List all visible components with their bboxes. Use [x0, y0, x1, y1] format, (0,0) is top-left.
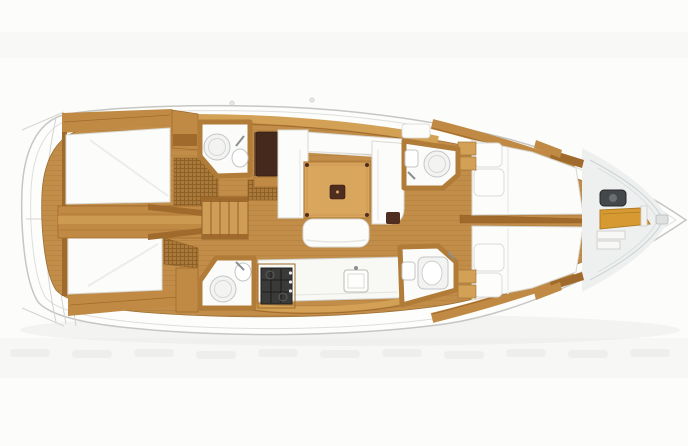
pillow [474, 273, 502, 297]
settee-right-arm [372, 141, 404, 224]
smudge [382, 349, 422, 357]
smudge [196, 351, 236, 359]
shower-basin [210, 276, 236, 302]
chain-guide [641, 206, 647, 226]
shelf-unit [458, 142, 476, 155]
smudge [320, 350, 360, 358]
shadow-smudge-row [10, 349, 670, 359]
stove-cooktop [261, 268, 292, 304]
sink-faucet [354, 266, 358, 270]
smudge [10, 349, 50, 357]
pillow [474, 244, 504, 271]
shelf-unit [458, 270, 476, 283]
chart-table [256, 132, 278, 176]
sink [402, 262, 415, 280]
table-corner-post [365, 163, 369, 167]
steps-rail-top [202, 197, 248, 202]
shelf-unit [458, 157, 476, 170]
pillow [474, 143, 502, 167]
engine-compartment [58, 204, 202, 240]
yacht-layout-diagram [0, 0, 688, 446]
table-corner-post [305, 163, 309, 167]
saloon-bench [303, 219, 369, 247]
engine-box-highlight [58, 216, 202, 224]
table-corner-post [305, 213, 309, 217]
smudge [630, 349, 670, 357]
sink [405, 150, 418, 167]
side-locker [386, 212, 400, 224]
steps-rail-bottom [202, 234, 248, 239]
toilet-bowl [422, 261, 442, 285]
shower-basin [204, 134, 230, 160]
aft-head-port [200, 122, 250, 176]
deck-fitting [310, 98, 314, 102]
double-berth [68, 234, 162, 294]
deck-hatch [402, 124, 430, 138]
nav-shelf [254, 177, 280, 187]
shelf-unit [458, 285, 476, 298]
smudge [506, 349, 546, 357]
locker-step [597, 241, 620, 249]
table-center-dot [336, 191, 339, 194]
wardrobe-shelf [173, 134, 197, 146]
shower-basin [424, 151, 450, 177]
forward-head-port [404, 141, 458, 188]
steps-frame [202, 197, 248, 239]
aft-cabin-starboard [62, 234, 198, 316]
table-corner-post [365, 213, 369, 217]
locker-step [597, 231, 625, 239]
double-berth [66, 128, 170, 204]
deck-fitting [230, 101, 234, 105]
toilet [232, 149, 248, 167]
aft-head-starboard [200, 258, 254, 308]
smudge [72, 350, 112, 358]
ambient-band-top [0, 32, 688, 58]
toilet [235, 263, 251, 281]
berth-edge-trim [62, 236, 67, 296]
stove-knob [289, 289, 292, 292]
stove-knob [289, 280, 292, 283]
windlass-drum [609, 194, 617, 202]
smudge [134, 349, 174, 357]
smudge [258, 349, 298, 357]
bow-roller [656, 215, 668, 224]
stove-knob [289, 271, 292, 274]
pillow [474, 169, 504, 196]
smudge [568, 350, 608, 358]
deck-plan-canvas [0, 0, 688, 446]
smudge [444, 351, 484, 359]
nav-station [254, 132, 280, 187]
wardrobe [176, 268, 198, 312]
saloon-table [304, 162, 370, 218]
